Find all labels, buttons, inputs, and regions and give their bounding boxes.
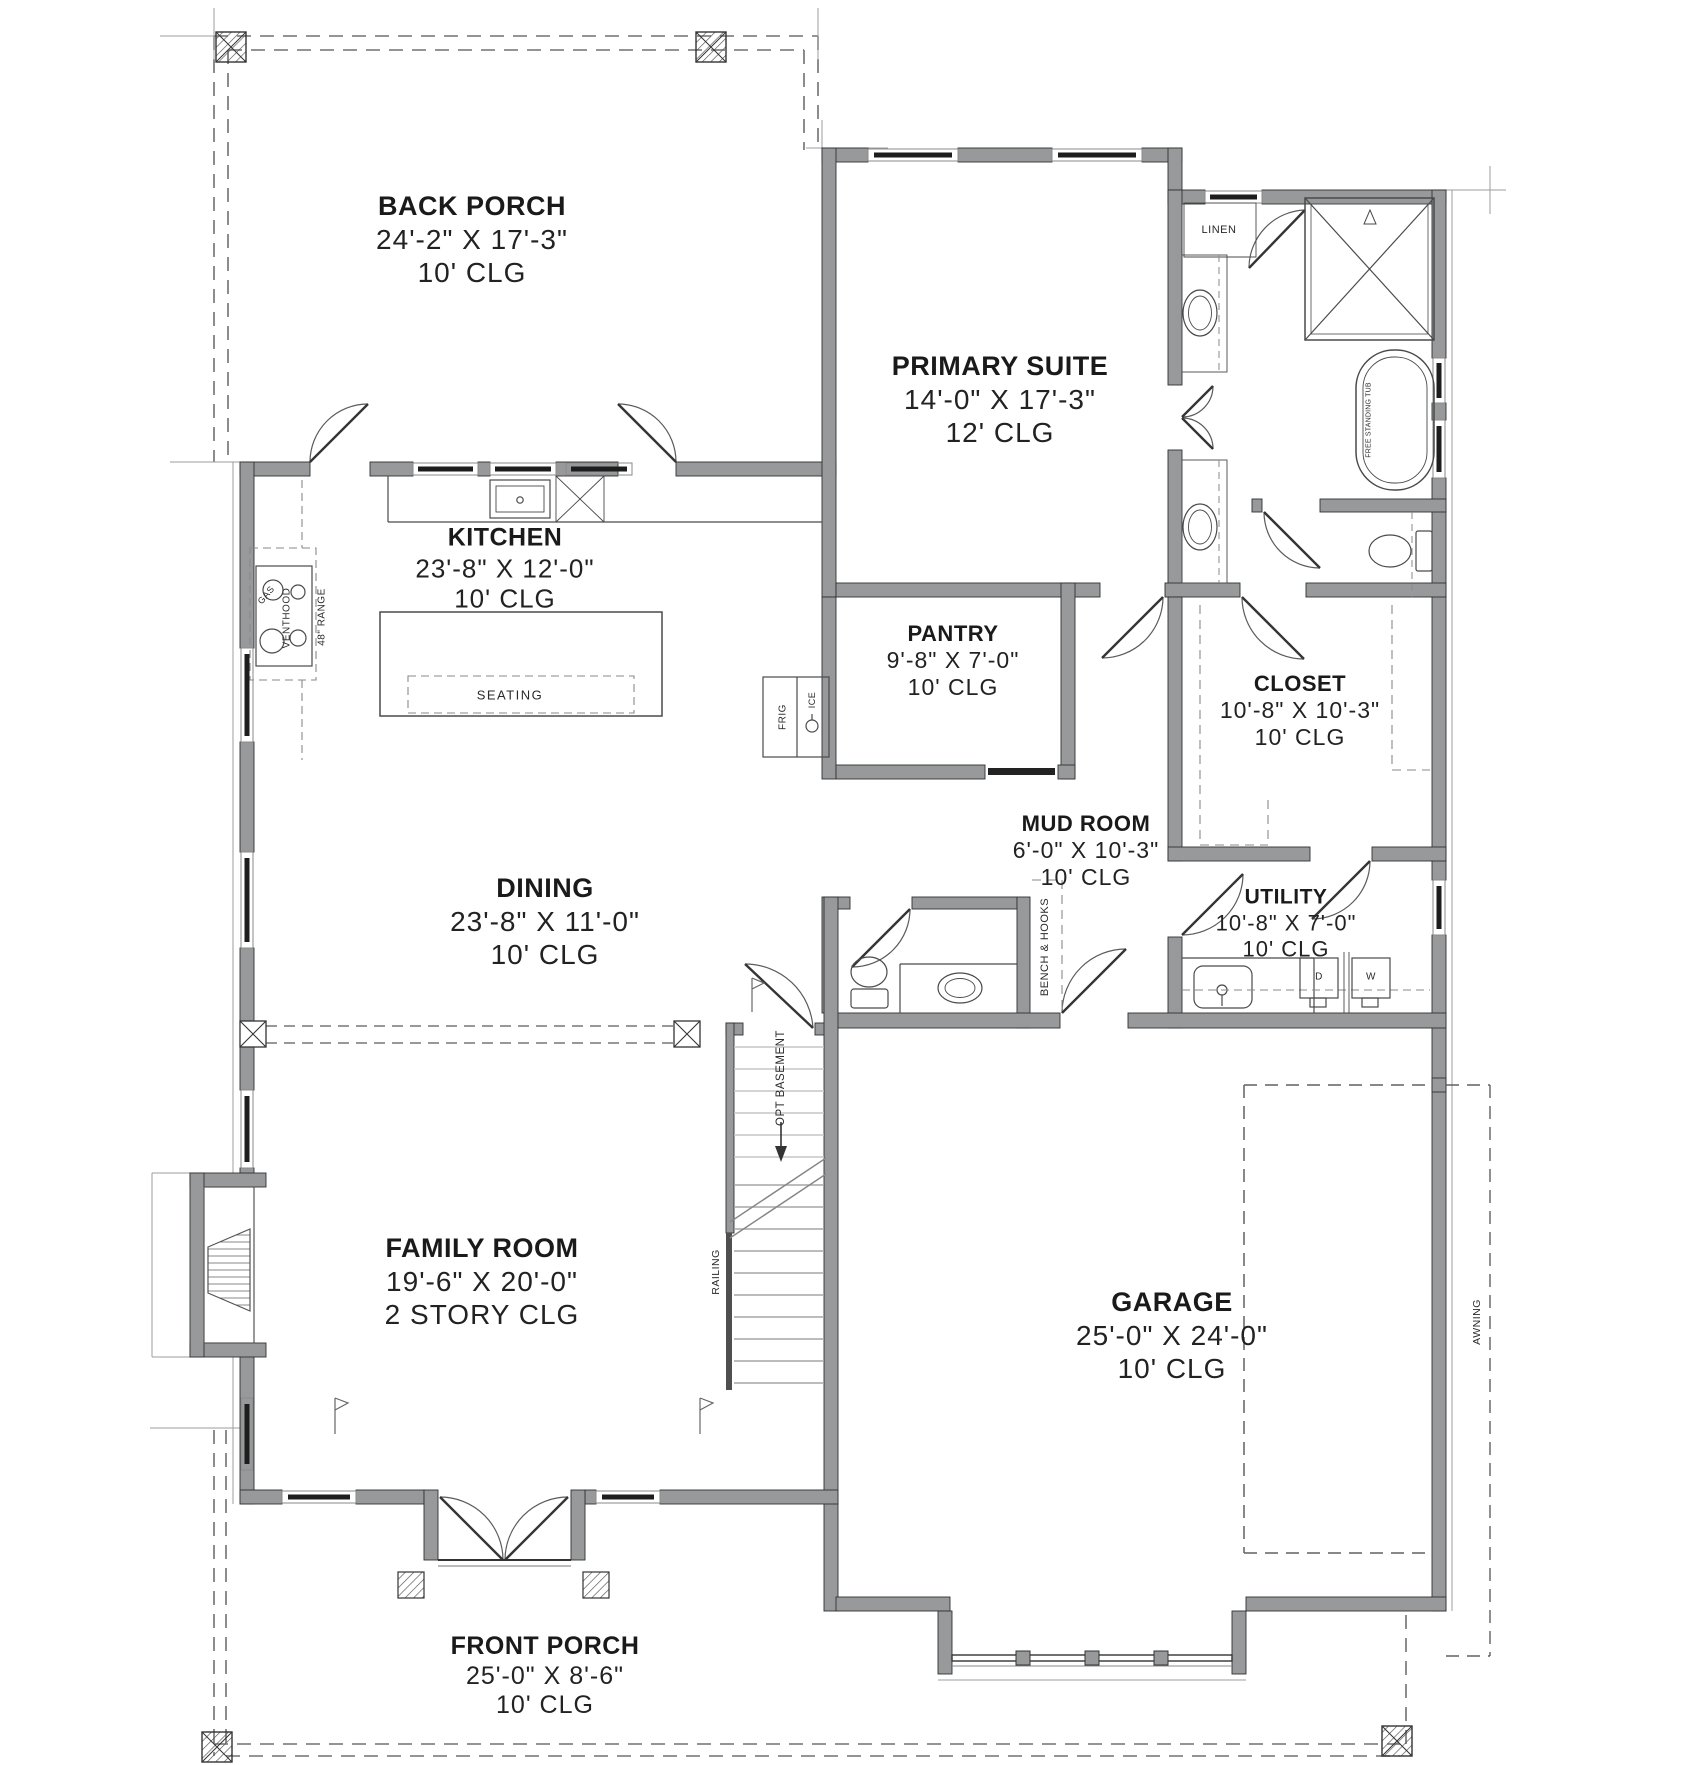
bath-fixtures bbox=[1182, 198, 1434, 597]
room-label-pantry: PANTRY 9'-8" X 7'-0" 10' CLG bbox=[887, 621, 1020, 701]
powder-room-fixtures bbox=[851, 957, 1017, 1013]
label-linen-closet: LINEN bbox=[1202, 224, 1237, 236]
room-ceiling: 10' CLG bbox=[1076, 1352, 1268, 1385]
label-dryer: D bbox=[1315, 972, 1323, 983]
room-label-utility: UTILITY 10'-8" X 7'-0" 10' CLG bbox=[1216, 886, 1357, 963]
label-stair-railing: RAILING bbox=[710, 1249, 722, 1295]
room-name: UTILITY bbox=[1216, 886, 1357, 911]
room-label-primary-suite: PRIMARY SUITE 14'-0" X 17'-3" 12' CLG bbox=[892, 351, 1109, 449]
room-name: KITCHEN bbox=[415, 524, 594, 554]
room-dimensions: 25'-0" X 24'-0" bbox=[1076, 1319, 1268, 1352]
room-name: CLOSET bbox=[1220, 671, 1380, 697]
room-label-family-room: FAMILY ROOM 19'-6" X 20'-0" 2 STORY CLG bbox=[385, 1233, 580, 1331]
room-ceiling: 10' CLG bbox=[1220, 724, 1380, 751]
ceiling-beam bbox=[240, 1021, 700, 1047]
garage-door bbox=[952, 1651, 1232, 1666]
parking-stall bbox=[1244, 1085, 1432, 1553]
room-name: BACK PORCH bbox=[376, 191, 568, 223]
room-dimensions: 14'-0" X 17'-3" bbox=[892, 383, 1109, 416]
room-ceiling: 10' CLG bbox=[415, 584, 594, 615]
room-dimensions: 23'-8" X 12'-0" bbox=[415, 553, 594, 584]
room-ceiling: 12' CLG bbox=[892, 416, 1109, 449]
room-name: GARAGE bbox=[1076, 1287, 1268, 1319]
room-label-front-porch: FRONT PORCH 25'-0" X 8'-6" 10' CLG bbox=[451, 1632, 640, 1721]
room-name: FRONT PORCH bbox=[451, 1632, 640, 1662]
room-dimensions: 24'-2" X 17'-3" bbox=[376, 223, 568, 256]
label-washer: W bbox=[1366, 972, 1376, 983]
label-optional-basement: OPT BASEMENT bbox=[775, 1030, 787, 1126]
room-ceiling: 10' CLG bbox=[1013, 864, 1160, 891]
kitchen-fixtures bbox=[250, 476, 829, 760]
room-ceiling: 10' CLG bbox=[451, 1691, 640, 1721]
room-name: MUD ROOM bbox=[1013, 811, 1160, 837]
room-ceiling: 2 STORY CLG bbox=[385, 1298, 580, 1331]
room-dimensions: 23'-8" X 11'-0" bbox=[450, 905, 640, 938]
room-label-kitchen: KITCHEN 23'-8" X 12'-0" 10' CLG bbox=[415, 524, 594, 615]
room-name: PRIMARY SUITE bbox=[892, 351, 1109, 383]
room-dimensions: 9'-8" X 7'-0" bbox=[887, 647, 1020, 674]
awning-outline bbox=[1446, 1085, 1490, 1656]
fireplace bbox=[190, 1173, 266, 1357]
room-ceiling: 10' CLG bbox=[1216, 936, 1357, 962]
room-label-dining: DINING 23'-8" X 11'-0" 10' CLG bbox=[450, 873, 640, 971]
room-dimensions: 19'-6" X 20'-0" bbox=[385, 1265, 580, 1298]
label-island-seating: SEATING bbox=[477, 688, 544, 703]
railing-wall bbox=[726, 1233, 732, 1390]
room-name: PANTRY bbox=[887, 621, 1020, 647]
floor-plan: BACK PORCH 24'-2" X 17'-3" 10' CLG PRIMA… bbox=[0, 0, 1696, 1765]
room-label-back-porch: BACK PORCH 24'-2" X 17'-3" 10' CLG bbox=[376, 191, 568, 289]
room-label-closet: CLOSET 10'-8" X 10'-3" 10' CLG bbox=[1220, 671, 1380, 751]
room-dimensions: 10'-8" X 10'-3" bbox=[1220, 697, 1380, 724]
label-refrigerator: FRIG bbox=[778, 704, 789, 730]
room-dimensions: 25'-0" X 8'-6" bbox=[451, 1661, 640, 1691]
label-awning: AWNING bbox=[1471, 1299, 1483, 1345]
room-label-mud-room: MUD ROOM 6'-0" X 10'-3" 10' CLG bbox=[1013, 811, 1160, 891]
room-name: FAMILY ROOM bbox=[385, 1233, 580, 1265]
room-dimensions: 10'-8" X 7'-0" bbox=[1216, 910, 1357, 936]
room-name: DINING bbox=[450, 873, 640, 905]
label-ice-maker: ICE bbox=[807, 692, 817, 709]
room-ceiling: 10' CLG bbox=[887, 674, 1020, 701]
label-freestanding-tub: FREE STANDING TUB bbox=[1366, 382, 1373, 457]
label-venthood: VENTHOOD bbox=[282, 588, 293, 649]
label-bench-and-hooks: BENCH & HOOKS bbox=[1039, 898, 1051, 996]
label-48in-range: 48" RANGE bbox=[317, 588, 328, 646]
entry-posts bbox=[398, 1572, 609, 1598]
room-label-garage: GARAGE 25'-0" X 24'-0" 10' CLG bbox=[1076, 1287, 1268, 1385]
floor-plan-drawing bbox=[0, 0, 1696, 1765]
room-ceiling: 10' CLG bbox=[376, 256, 568, 289]
room-dimensions: 6'-0" X 10'-3" bbox=[1013, 837, 1160, 864]
front-porch-outline bbox=[214, 1430, 1406, 1756]
room-ceiling: 10' CLG bbox=[450, 938, 640, 971]
